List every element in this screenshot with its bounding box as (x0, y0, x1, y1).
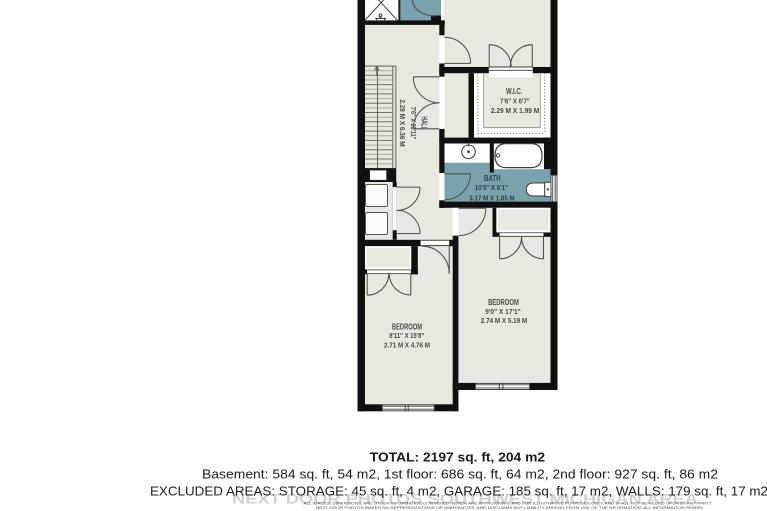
svg-text:2.29 M X 1.99 M: 2.29 M X 1.99 M (491, 106, 539, 115)
svg-text:BEDROOM: BEDROOM (488, 298, 519, 307)
svg-text:EXCLUDED AREAS: STORAGE: 45 sq: EXCLUDED AREAS: STORAGE: 45 sq. ft, 4 m2… (150, 484, 767, 499)
svg-text:NEXT DOOR PHOTOS MAKES NO REPR: NEXT DOOR PHOTOS MAKES NO REPRESENTATION… (316, 505, 704, 510)
svg-text:2.74 M X 5.19 M: 2.74 M X 5.19 M (481, 316, 527, 325)
svg-text:3.17 M X 1.85 M: 3.17 M X 1.85 M (469, 193, 514, 202)
svg-text:BATH: BATH (484, 174, 501, 183)
svg-text:7'6" X 6'7": 7'6" X 6'7" (500, 97, 530, 106)
svg-text:HALL: HALL (420, 116, 429, 129)
svg-text:7'6" X 20'11": 7'6" X 20'11" (409, 107, 418, 140)
svg-text:8'11" X 15'8": 8'11" X 15'8" (389, 331, 424, 340)
svg-text:2.71 M X 4.76 M: 2.71 M X 4.76 M (384, 341, 430, 350)
svg-text:W.I.C.: W.I.C. (506, 87, 522, 96)
svg-text:TOTAL: 2197 sq. ft, 204 m2: TOTAL: 2197 sq. ft, 204 m2 (370, 450, 545, 465)
svg-text:Basement: 584 sq. ft, 54 m2, 1: Basement: 584 sq. ft, 54 m2, 1st floor: … (202, 467, 718, 482)
svg-text:9'0" X 17'1": 9'0" X 17'1" (485, 307, 521, 316)
svg-text:10'5" X 6'1": 10'5" X 6'1" (475, 183, 508, 192)
svg-text:2.28 M X 6.36 M: 2.28 M X 6.36 M (398, 99, 407, 146)
